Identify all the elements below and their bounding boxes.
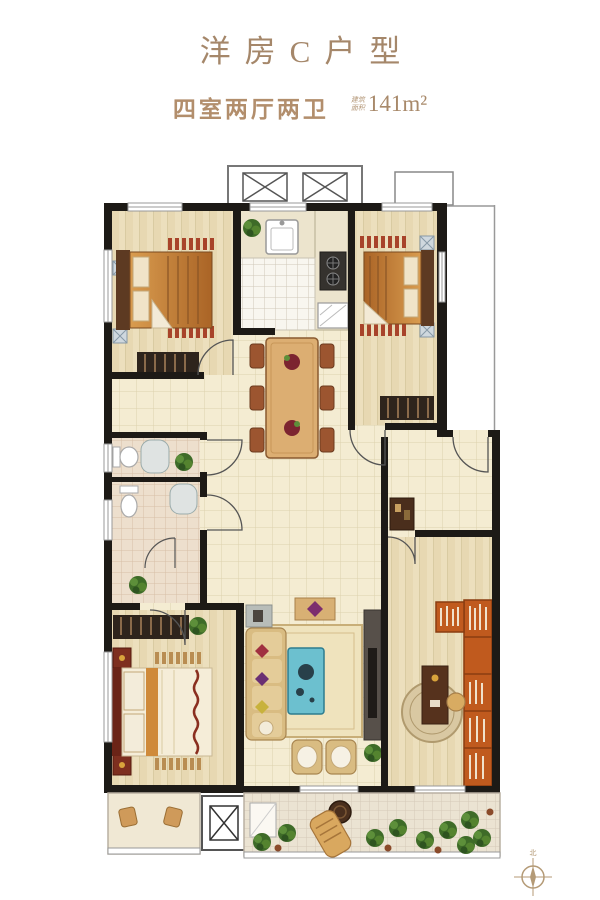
window <box>128 203 182 211</box>
wardrobe <box>113 615 189 639</box>
window <box>104 652 112 742</box>
elevator-icon <box>303 173 347 201</box>
window <box>250 203 306 211</box>
shower-icon <box>141 440 169 473</box>
window <box>104 444 112 472</box>
bed <box>364 250 434 326</box>
plant-icon <box>189 617 207 635</box>
duct-shaft <box>202 796 246 850</box>
kitchen <box>240 210 348 330</box>
bathroom-2 <box>111 482 200 603</box>
duct-box <box>395 172 453 205</box>
compass-north-label: 北 <box>530 849 537 857</box>
floorplan-page: 洋房C户型 四室两厅两卫 建筑 面积 141m² <box>0 0 600 900</box>
armchair <box>292 740 322 774</box>
window <box>104 500 112 540</box>
stove-icon <box>320 252 346 290</box>
armchair <box>326 740 356 774</box>
lobby-outline <box>447 205 495 430</box>
window <box>382 203 432 211</box>
desk <box>422 666 448 724</box>
shoe-cabinet <box>390 498 414 530</box>
elevator-icon <box>243 173 287 201</box>
window <box>104 250 112 322</box>
bedroom-top-left <box>111 210 233 376</box>
plant-icon <box>364 744 382 762</box>
window <box>439 252 445 302</box>
fridge-icon <box>318 303 348 328</box>
toilet-icon <box>113 447 138 467</box>
plant-icon <box>129 576 147 594</box>
desk-chair <box>447 693 465 711</box>
dining-area <box>250 338 334 458</box>
toilet-icon <box>120 486 138 517</box>
sofa <box>246 628 286 740</box>
bed <box>116 250 212 330</box>
bathroom-1 <box>111 438 200 477</box>
bed <box>112 668 212 756</box>
sink-icon <box>266 220 298 254</box>
main-balcony <box>244 793 500 860</box>
balcony-chair <box>118 807 137 828</box>
shower-icon <box>170 484 197 514</box>
compass-icon: 北 <box>514 849 552 896</box>
study <box>388 537 492 786</box>
tv-cabinet <box>364 610 381 740</box>
plant-icon <box>175 453 193 471</box>
coffee-table <box>288 648 324 714</box>
wardrobe <box>380 396 434 420</box>
floor-plan-drawing: 北 <box>0 0 600 900</box>
bedroom-top-right <box>355 210 437 425</box>
master-bedroom <box>111 610 236 785</box>
small-balcony <box>108 793 200 854</box>
plant-icon <box>243 219 261 237</box>
